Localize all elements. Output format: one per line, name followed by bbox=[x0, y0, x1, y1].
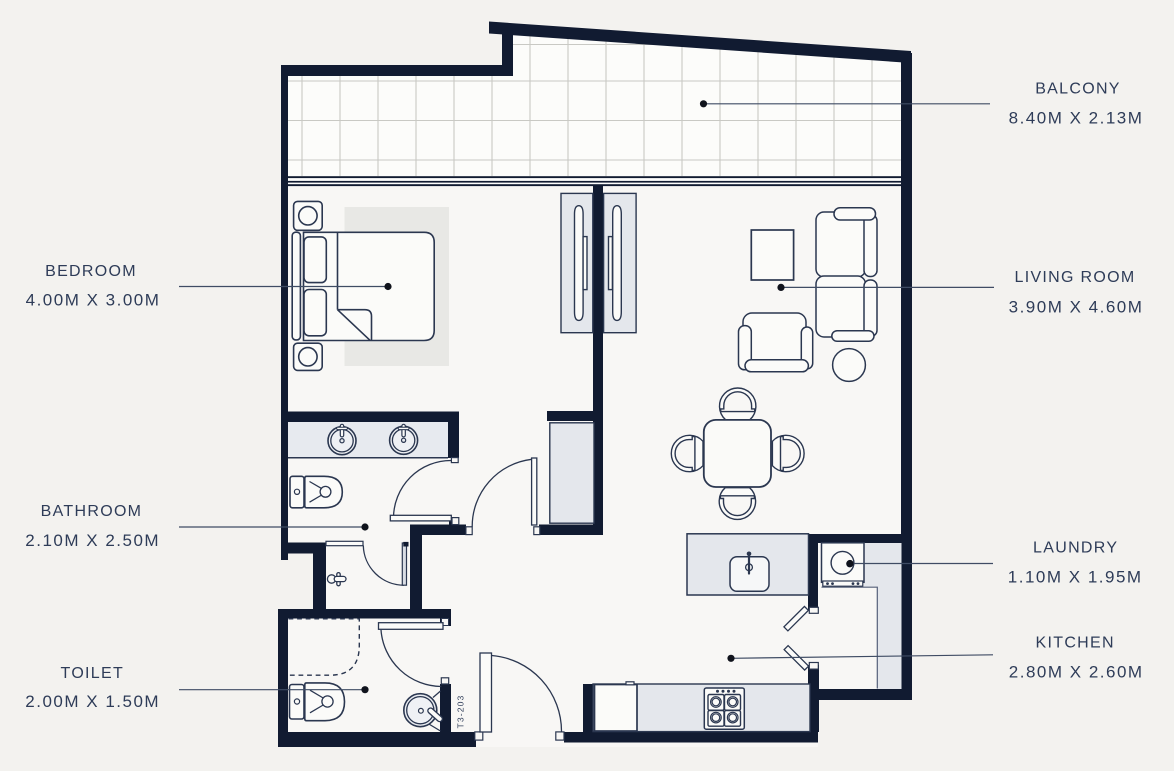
svg-text:TOILET: TOILET bbox=[61, 665, 125, 682]
svg-text:2.80M X 2.60M: 2.80M X 2.60M bbox=[1009, 662, 1144, 681]
svg-text:4.00M X 3.00M: 4.00M X 3.00M bbox=[26, 291, 161, 310]
svg-text:8.40M X 2.13M: 8.40M X 2.13M bbox=[1009, 109, 1144, 128]
svg-text:2.10M X 2.50M: 2.10M X 2.50M bbox=[25, 531, 160, 550]
svg-text:LAUNDRY: LAUNDRY bbox=[1033, 540, 1118, 557]
svg-text:BALCONY: BALCONY bbox=[1035, 80, 1121, 97]
svg-text:T3-203: T3-203 bbox=[456, 695, 466, 729]
svg-text:KITCHEN: KITCHEN bbox=[1036, 635, 1115, 652]
svg-text:LIVING ROOM: LIVING ROOM bbox=[1015, 269, 1136, 286]
svg-text:3.90M X 4.60M: 3.90M X 4.60M bbox=[1009, 297, 1144, 316]
svg-text:BATHROOM: BATHROOM bbox=[41, 503, 143, 520]
svg-text:BEDROOM: BEDROOM bbox=[45, 263, 137, 280]
svg-text:2.00M X 1.50M: 2.00M X 1.50M bbox=[25, 692, 160, 711]
svg-text:1.10M X 1.95M: 1.10M X 1.95M bbox=[1008, 567, 1143, 586]
